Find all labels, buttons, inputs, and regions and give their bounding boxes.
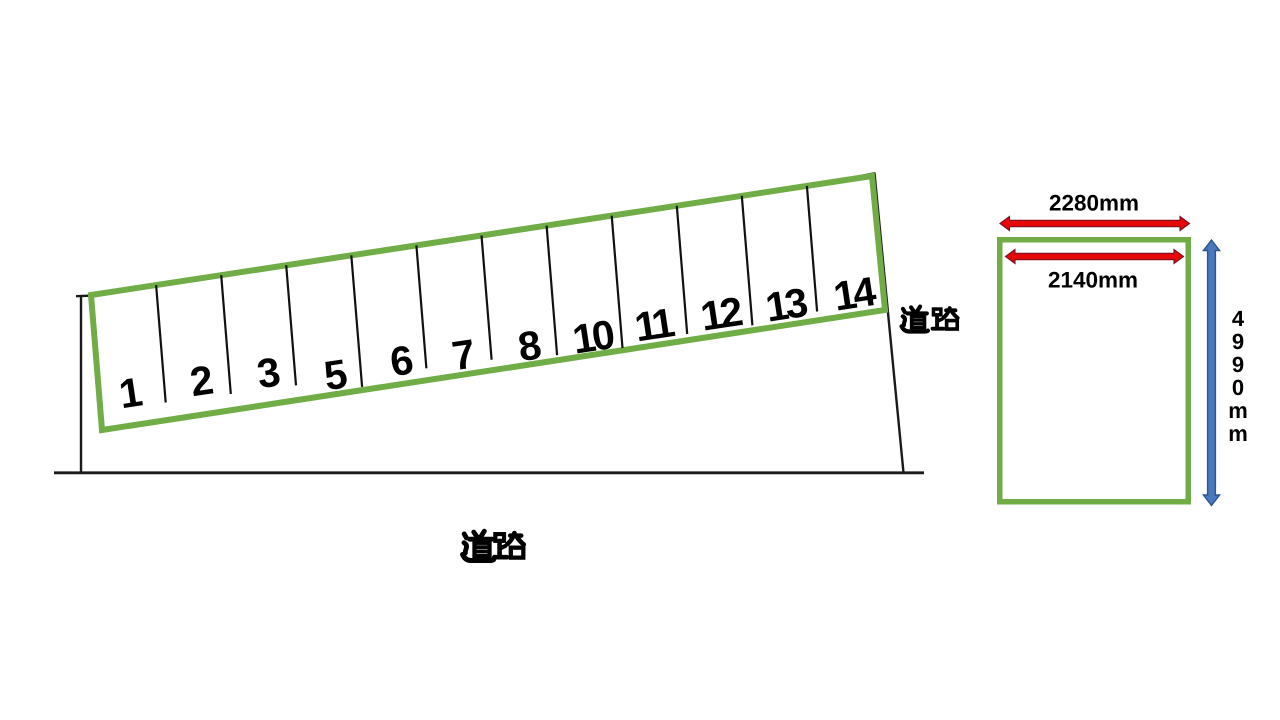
svg-text:m: m — [1228, 421, 1248, 446]
svg-text:9: 9 — [1232, 352, 1244, 377]
svg-text:2280mm: 2280mm — [1049, 191, 1139, 216]
svg-text:0: 0 — [1232, 375, 1244, 400]
svg-text:4: 4 — [1232, 306, 1245, 331]
svg-text:9: 9 — [1232, 329, 1244, 354]
svg-text:2140mm: 2140mm — [1048, 268, 1138, 293]
svg-text:m: m — [1228, 398, 1248, 423]
